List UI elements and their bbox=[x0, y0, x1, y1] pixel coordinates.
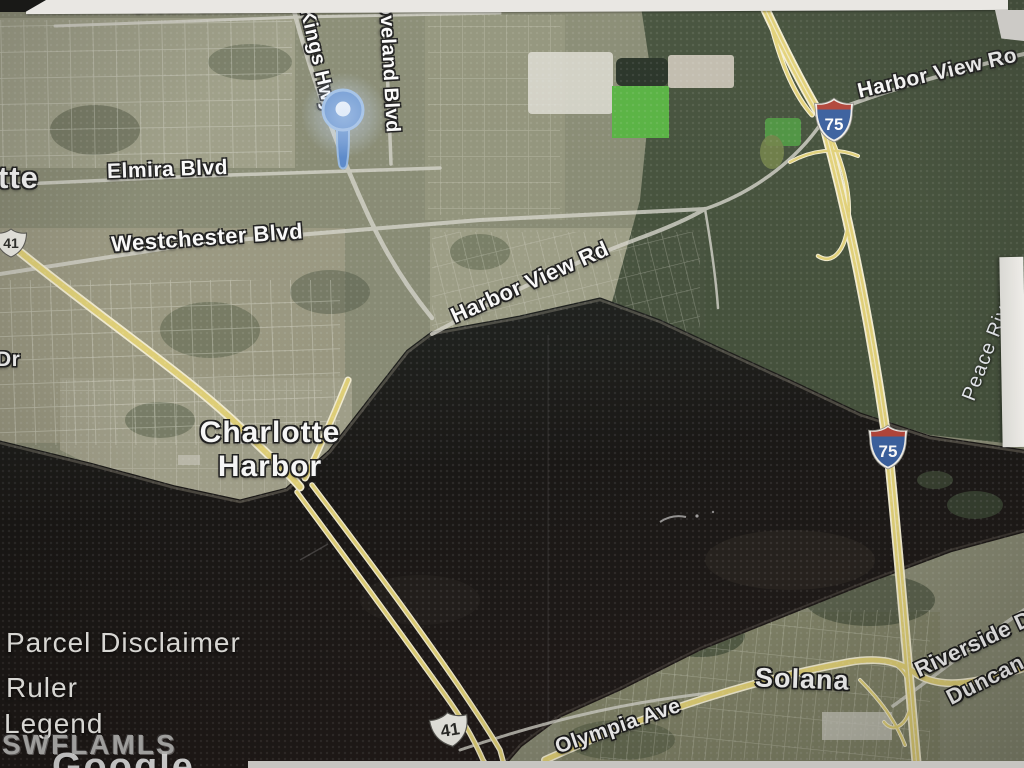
map-pin-glow bbox=[301, 72, 387, 158]
street-label-dr-partial: Dr bbox=[0, 348, 20, 372]
swflamls-watermark: SWFLAMLS bbox=[2, 729, 177, 761]
locality-label-charlotte-harbor: Charlotte Harbor bbox=[188, 416, 352, 484]
locality-charlotte-line2: Harbor bbox=[218, 450, 322, 483]
interstate-75-shield: 75 bbox=[813, 97, 855, 143]
parcel-disclaimer-link[interactable]: Parcel Disclaimer bbox=[6, 627, 241, 659]
interstate-75-shield-number: 75 bbox=[825, 115, 844, 134]
us-41-shield: 41 bbox=[425, 707, 475, 752]
street-label-elmira-blvd: Elmira Blvd bbox=[107, 156, 229, 184]
locality-charlotte-line1: Charlotte bbox=[200, 416, 341, 449]
us-41-shield: 41 bbox=[0, 227, 29, 259]
us-41-shield-number: 41 bbox=[439, 719, 461, 741]
screen-edge-right-panel bbox=[999, 257, 1024, 447]
screen-edge-bottom bbox=[248, 761, 1024, 768]
locality-label-solana: Solana bbox=[754, 662, 850, 696]
interstate-75-shield: 75 bbox=[867, 424, 909, 470]
locality-label-port-charlotte-partial: tte bbox=[0, 160, 39, 196]
ruler-link[interactable]: Ruler bbox=[6, 672, 78, 704]
interstate-75-shield-number: 75 bbox=[879, 442, 898, 461]
map-pin[interactable] bbox=[315, 84, 371, 176]
map-viewport[interactable]: Olean Blvd Elmira Blvd Westchester Blvd … bbox=[0, 0, 1024, 768]
us-41-shield-number: 41 bbox=[3, 235, 19, 251]
